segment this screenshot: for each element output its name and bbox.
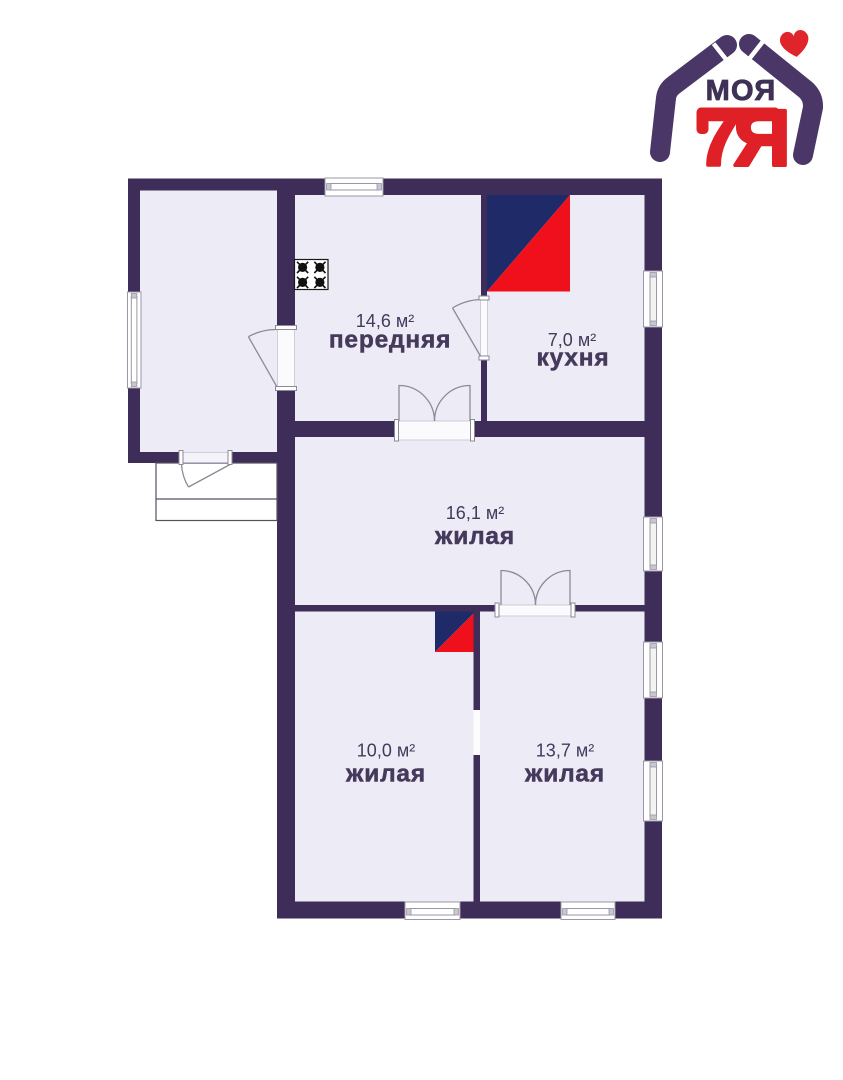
svg-text:16,1 м²: 16,1 м² [446,503,504,523]
svg-text:жилая: жилая [524,761,605,788]
svg-text:передняя: передняя [329,327,451,354]
svg-text:кухня: кухня [537,345,610,372]
svg-text:13,7 м²: 13,7 м² [536,741,594,761]
svg-text:10,0 м²: 10,0 м² [357,741,415,761]
svg-text:жилая: жилая [345,761,426,788]
svg-text:7Я: 7Я [697,93,786,182]
svg-text:жилая: жилая [434,523,515,550]
